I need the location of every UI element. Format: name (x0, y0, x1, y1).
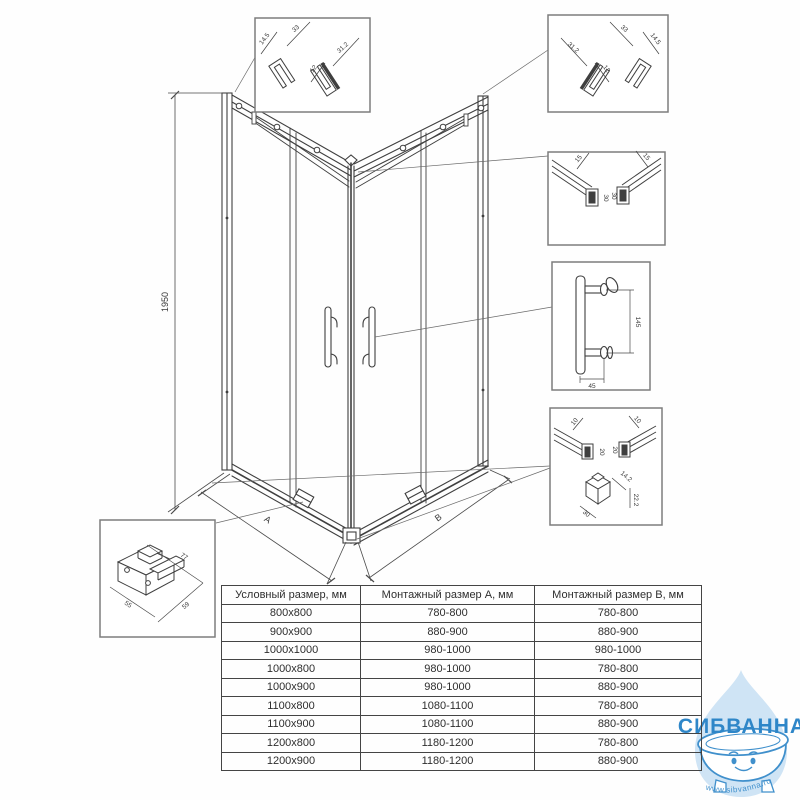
table-cell: 880-900 (361, 623, 535, 642)
table-row: 1200x9001180-1200880-900 (222, 752, 702, 771)
table-cell: 1000x800 (222, 660, 361, 679)
table-cell: 1100x900 (222, 715, 361, 734)
table-header-mount-a: Монтажный размер А, мм (361, 586, 535, 605)
table-row: 1000x900980-1000880-900 (222, 678, 702, 697)
table-cell: 980-1000 (361, 641, 535, 660)
right-wall-profile (478, 96, 488, 466)
detail-bottom-rail-corner: 10 10 20 20 14.2 22.2 30 (550, 408, 662, 525)
corner-column (348, 163, 354, 543)
table-cell: 1000x1000 (222, 641, 361, 660)
dim-label: 20 (611, 446, 618, 454)
table-cell: 1000x900 (222, 678, 361, 697)
dim-label: 20 (598, 448, 605, 456)
size-table-header: Условный размер, мм Монтажный размер А, … (222, 586, 702, 605)
table-cell: 880-900 (535, 678, 702, 697)
table-header-nominal-size: Условный размер, мм (222, 586, 361, 605)
table-cell: 1080-1100 (361, 715, 535, 734)
table-cell: 1180-1200 (361, 752, 535, 771)
dim-label-b: B (433, 512, 444, 524)
table-row: 1100x8001080-1100780-800 (222, 697, 702, 716)
table-cell: 780-800 (535, 697, 702, 716)
table-cell: 780-800 (361, 604, 535, 623)
dim-width-b: B (358, 470, 512, 582)
table-cell: 1200x800 (222, 734, 361, 753)
door-handles (325, 307, 375, 367)
table-header-mount-b: Монтажный размер В, мм (535, 586, 702, 605)
table-cell: 780-800 (535, 660, 702, 679)
glass-panels (290, 128, 426, 507)
dim-label-a: A (262, 514, 273, 526)
dim-width-a: A (198, 474, 346, 584)
detail-top-left-profile: 14.5 33 12 31.2 (255, 18, 370, 112)
table-cell: 1080-1100 (361, 697, 535, 716)
left-wall-profile (222, 93, 232, 470)
table-row: 1200x8001180-1200780-800 (222, 734, 702, 753)
bottom-rails (232, 460, 488, 545)
table-row: 1000x1000980-1000980-1000 (222, 641, 702, 660)
size-table: Условный размер, мм Монтажный размер А, … (221, 585, 690, 771)
detail-top-right-profile: 31.2 12 33 14.5 (548, 15, 668, 112)
dimension-lines: 1950 A B (160, 91, 512, 584)
callout-lines (212, 50, 552, 539)
table-cell: 1200x900 (222, 752, 361, 771)
dim-height-1950: 1950 (160, 91, 230, 514)
table-cell: 980-1000 (361, 660, 535, 679)
size-table-grid: Условный размер, мм Монтажный размер А, … (221, 585, 702, 771)
table-row: 1100x9001080-1100880-900 (222, 715, 702, 734)
dim-label-height: 1950 (160, 292, 170, 312)
bottom-roller-blocks (293, 485, 426, 543)
table-cell: 880-900 (535, 715, 702, 734)
table-cell: 880-900 (535, 623, 702, 642)
detail-roller-carriage: 77 55 59 (100, 520, 215, 637)
detail-door-handle: 145 45 (552, 262, 650, 390)
table-cell: 900x900 (222, 623, 361, 642)
dim-label: 45 (588, 383, 596, 390)
table-row: 1000x800980-1000780-800 (222, 660, 702, 679)
table-cell: 880-900 (535, 752, 702, 771)
dim-label: 22.2 (632, 494, 639, 507)
dim-label: 145 (634, 317, 641, 328)
table-cell: 800x800 (222, 604, 361, 623)
table-cell: 780-800 (535, 604, 702, 623)
dim-label: 30 (602, 194, 609, 202)
table-cell: 980-1000 (361, 678, 535, 697)
dim-label: 30 (610, 192, 617, 200)
spec-sheet: 1950 A B (0, 0, 800, 800)
table-row: 800x800780-800780-800 (222, 604, 702, 623)
table-row: 900x900880-900880-900 (222, 623, 702, 642)
table-cell: 1180-1200 (361, 734, 535, 753)
shower-enclosure-drawing (222, 93, 488, 545)
table-cell: 780-800 (535, 734, 702, 753)
detail-top-rail-section: 15 30 15 30 (548, 151, 665, 245)
table-cell: 980-1000 (535, 641, 702, 660)
size-table-body: 800x800780-800780-800900x900880-900880-9… (222, 604, 702, 771)
table-cell: 1100x800 (222, 697, 361, 716)
